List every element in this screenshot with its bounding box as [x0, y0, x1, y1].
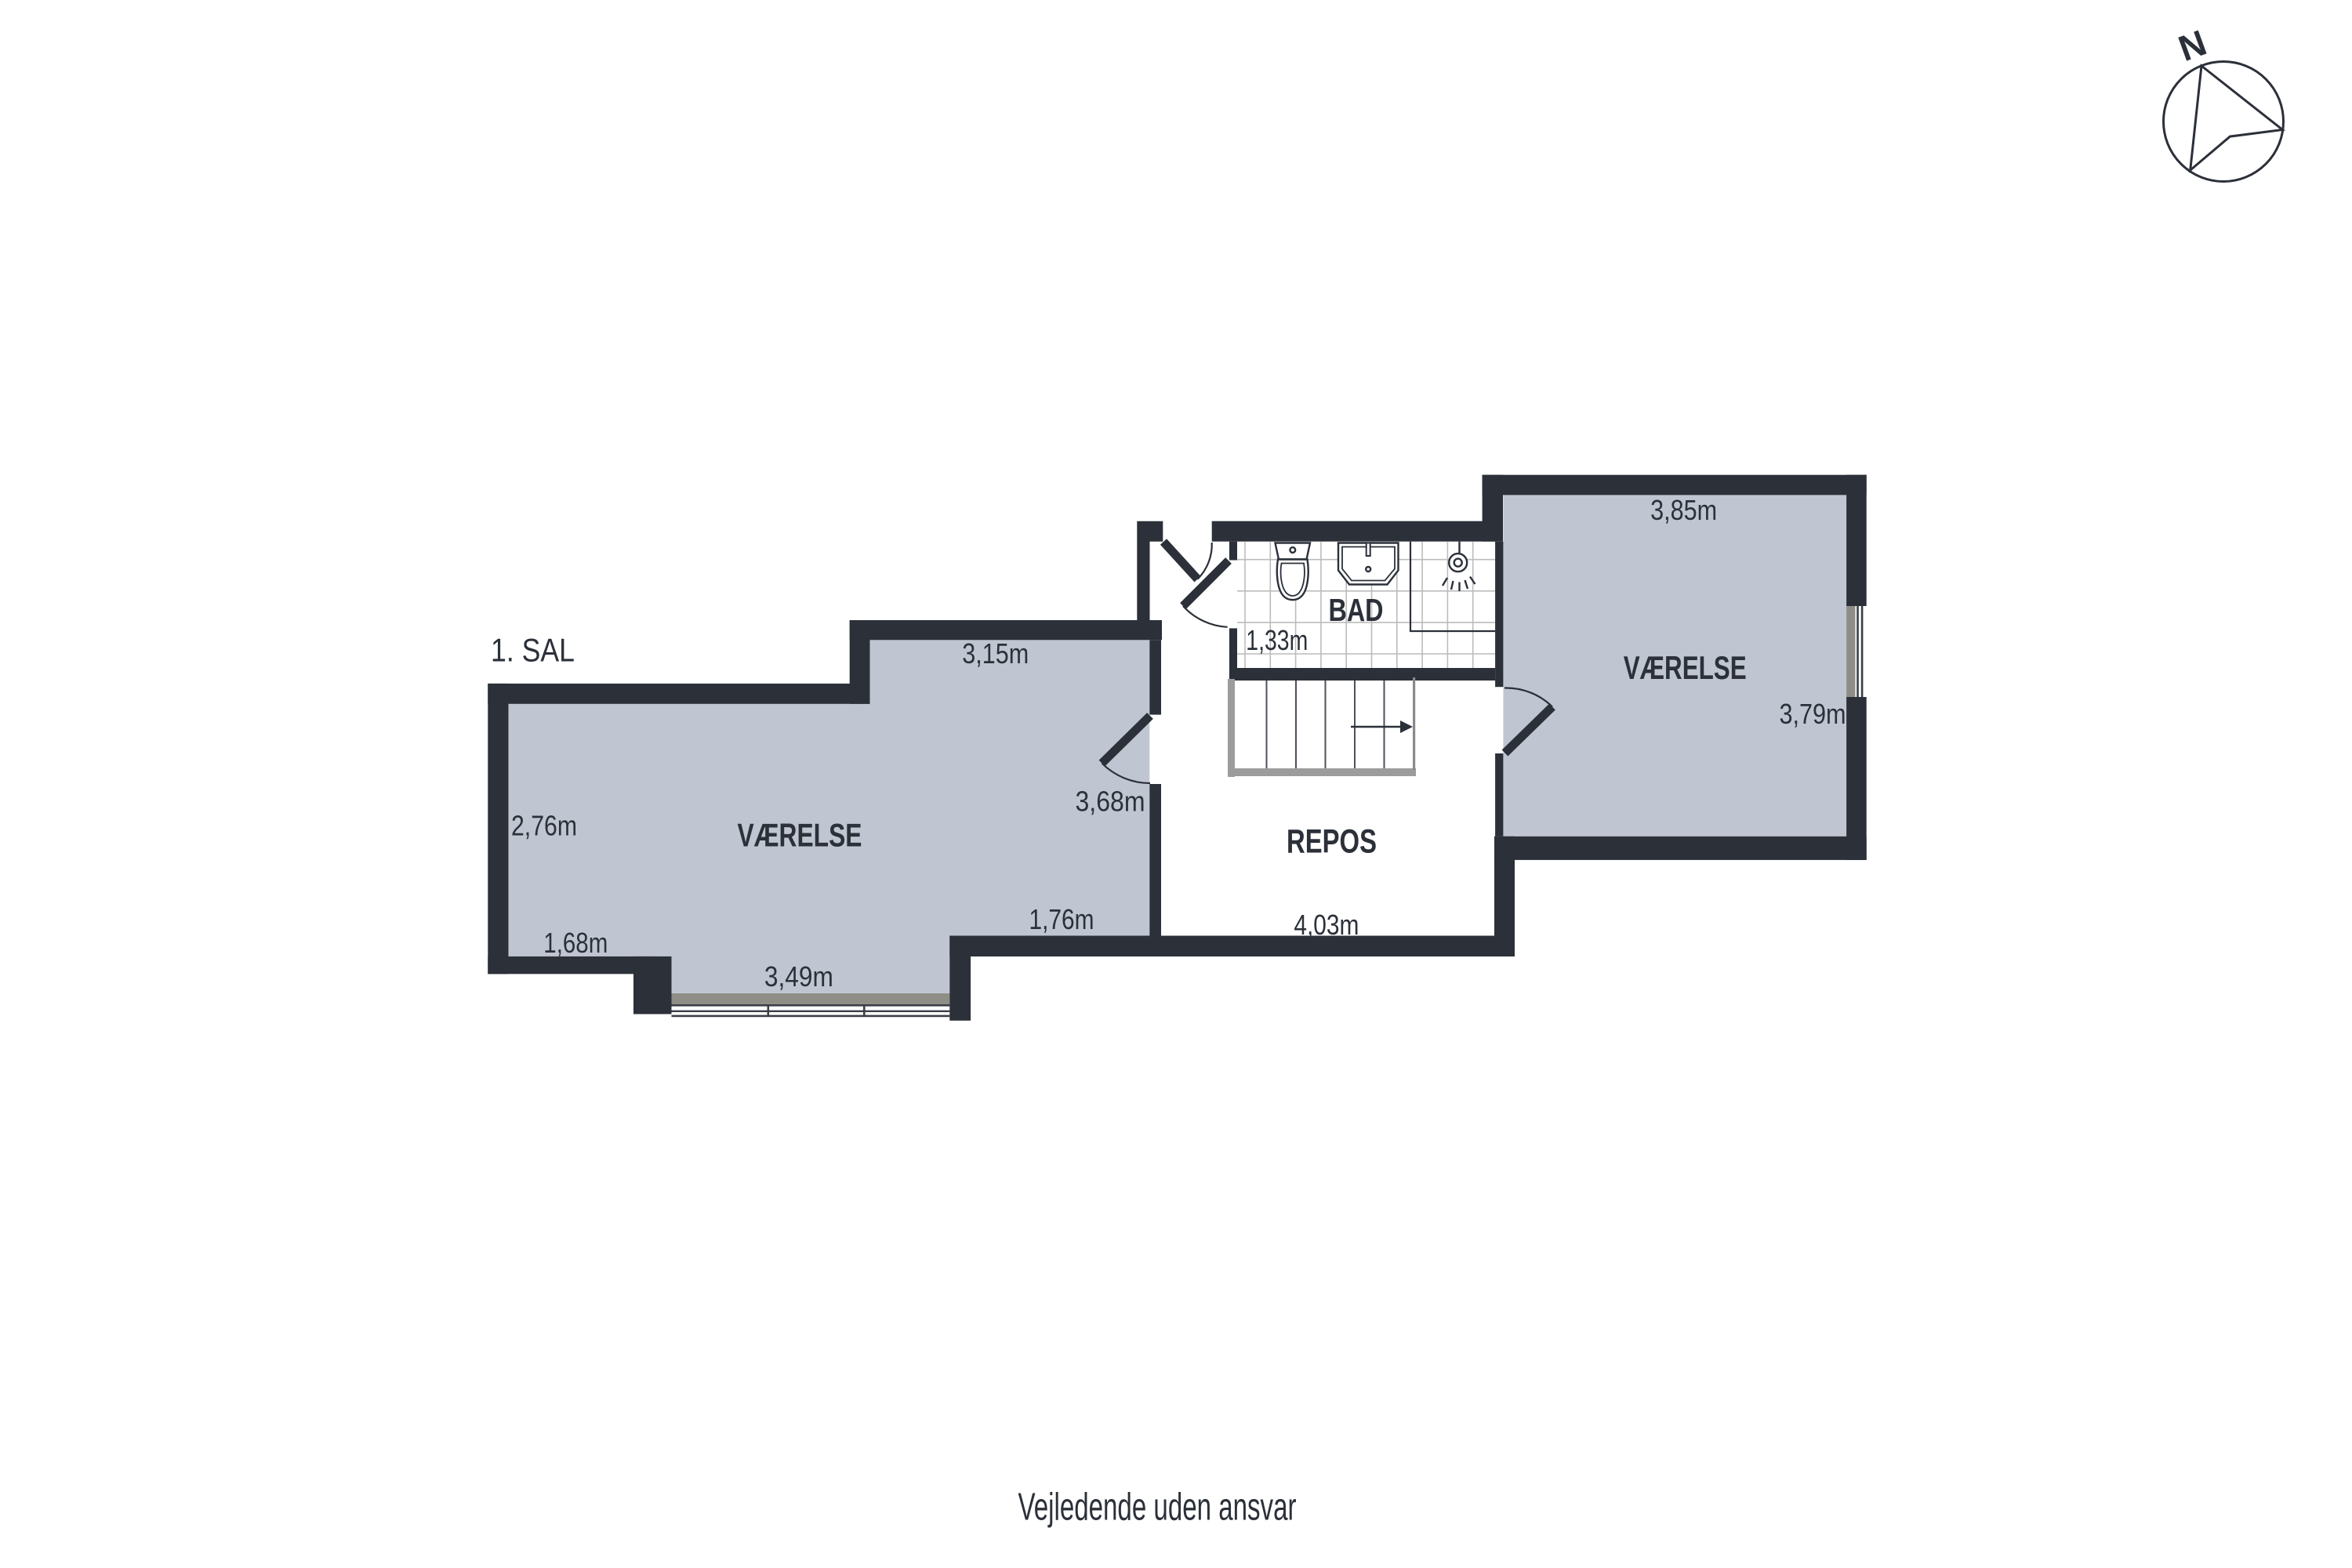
svg-text:3,79m: 3,79m: [1780, 698, 1846, 730]
svg-text:1,33m: 1,33m: [1246, 624, 1308, 656]
svg-text:Vejledende uden ansvar: Vejledende uden ansvar: [1018, 1486, 1297, 1529]
svg-text:3,68m: 3,68m: [1076, 785, 1145, 817]
svg-text:VÆRELSE: VÆRELSE: [1624, 649, 1747, 686]
svg-text:3,85m: 3,85m: [1650, 494, 1717, 526]
svg-text:1,68m: 1,68m: [543, 927, 608, 959]
svg-text:VÆRELSE: VÆRELSE: [738, 817, 862, 854]
svg-text:1. SAL: 1. SAL: [491, 632, 575, 669]
svg-text:BAD: BAD: [1329, 592, 1384, 628]
svg-text:3,15m: 3,15m: [962, 637, 1029, 670]
svg-text:2,76m: 2,76m: [511, 810, 577, 842]
svg-text:3,49m: 3,49m: [764, 960, 833, 993]
svg-text:REPOS: REPOS: [1287, 823, 1377, 861]
svg-text:1,76m: 1,76m: [1029, 903, 1094, 935]
